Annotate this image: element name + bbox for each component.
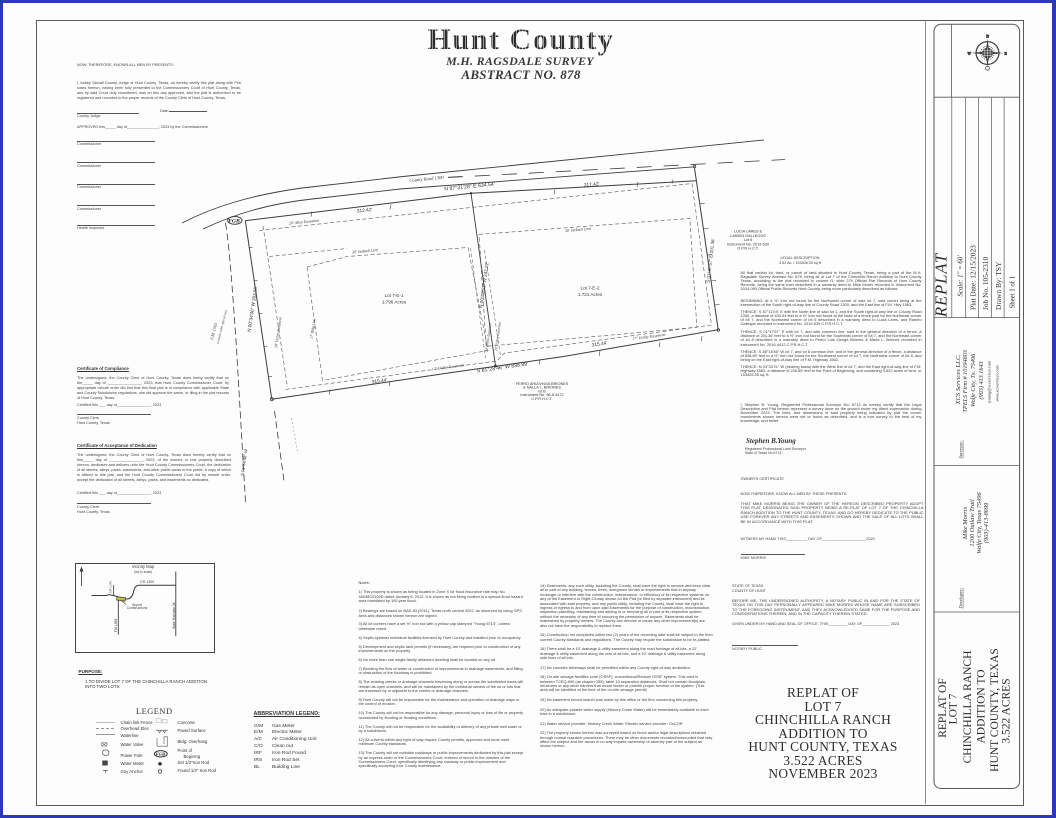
- svg-text:CR 1378: CR 1378: [109, 581, 113, 593]
- svg-text:ADDITION TO: ADDITION TO: [976, 670, 988, 744]
- svg-text:Job No. 105-2310: Job No. 105-2310: [981, 257, 990, 310]
- svg-text:20' Utility Easement: 20' Utility Easement: [494, 321, 502, 352]
- svg-text:S 01°38'48" W: S 01°38'48" W: [240, 449, 249, 476]
- svg-text:Scale: 1" = 60': Scale: 1" = 60': [957, 255, 964, 297]
- svg-text:Lot 7-E-2: Lot 7-E-2: [581, 286, 600, 291]
- svg-text:tyoung@xcsservices.com: tyoung@xcsservices.com: [987, 361, 992, 403]
- svg-text:1200 Outlaw Trail: 1200 Outlaw Trail: [969, 499, 976, 546]
- svg-text:315.44': 315.44': [591, 340, 607, 348]
- svg-text:312.42': 312.42': [357, 207, 373, 214]
- svg-text:319.44': 319.44': [371, 377, 387, 385]
- svg-text:State Highway 34: State Highway 34: [172, 602, 176, 629]
- svg-text:W: W: [968, 52, 972, 56]
- svg-text:20' Utility Easement: 20' Utility Easement: [274, 316, 283, 348]
- svg-text:O.P.R.H.C.T.: O.P.R.H.C.T.: [737, 247, 758, 251]
- svg-text:Wolfe City, Tx. 75496: Wolfe City, Tx. 75496: [970, 353, 977, 407]
- svg-text:FGB: FGB: [228, 219, 240, 225]
- svg-text:30' Setback Line: 30' Setback Line: [352, 247, 379, 255]
- svg-text:Surveyor:: Surveyor:: [958, 440, 963, 459]
- svg-text:N: N: [986, 34, 989, 38]
- svg-text:3.522 ACRES: 3.522 ACRES: [1001, 678, 1013, 743]
- svg-text:Mike Morris: Mike Morris: [962, 506, 969, 540]
- svg-text:1.721 Acres: 1.721 Acres: [578, 292, 603, 297]
- svg-text:(903) 413 1643: (903) 413 1643: [978, 361, 985, 399]
- svg-text:S 81°28'46" W 838.89': S 81°28'46" W 838.89': [476, 361, 528, 374]
- svg-text:20' Alley Easement: 20' Alley Easement: [289, 218, 321, 226]
- svg-text:N 00°34'06" W 203.56': N 00°34'06" W 203.56': [247, 286, 259, 332]
- svg-text:Developer:: Developer:: [958, 587, 963, 609]
- svg-text:N 87°31'28" E 634.54': N 87°31'28" E 634.54': [444, 182, 495, 193]
- svg-text:317.42': 317.42': [584, 181, 600, 188]
- svg-text:Plat Date: 12/15/2023: Plat Date: 12/15/2023: [968, 245, 977, 310]
- svg-text:17' Utility Easement: 17' Utility Easement: [431, 362, 465, 371]
- svg-text:Wolfe City, Texas 75496: Wolfe City, Texas 75496: [976, 492, 983, 554]
- svg-text:LOT 7: LOT 7: [947, 693, 959, 724]
- svg-text:(903)-413-8699: (903)-413-8699: [983, 502, 990, 543]
- svg-text:www.xcsservices.com: www.xcsservices.com: [995, 366, 1000, 402]
- svg-text:Lot 7-E-1: Lot 7-E-1: [385, 293, 404, 298]
- svg-text:TPELS Firm # 10194803: TPELS Firm # 10194803: [962, 350, 969, 412]
- svg-text:C.P.R.H.C.T.: C.P.R.H.C.T.: [531, 397, 552, 401]
- svg-text:E: E: [1005, 52, 1007, 56]
- svg-text:County Road 1300: County Road 1300: [409, 175, 444, 183]
- svg-text:N 00°08'53" W 242.22': N 00°08'53" W 242.22': [479, 262, 490, 308]
- svg-text:FGB: FGB: [156, 752, 165, 757]
- svg-text:S 01°47'57" E 201.36': S 01°47'57" E 201.36': [706, 238, 716, 283]
- svg-text:FM 1563: FM 1563: [114, 619, 118, 632]
- svg-text:XCS Services LLC.: XCS Services LLC.: [955, 354, 962, 406]
- svg-text:30' Setback Line: 30' Setback Line: [565, 226, 592, 233]
- svg-text:REPLAT: REPLAT: [932, 252, 951, 318]
- svg-text:Sheet 1 of 1: Sheet 1 of 1: [1010, 276, 1017, 309]
- svg-text:(variable width right of way): (variable width right of way): [216, 310, 228, 345]
- svg-text:CHINCHILLA RANCH: CHINCHILLA RANCH: [962, 651, 974, 764]
- svg-text:1.796 Acres: 1.796 Acres: [382, 300, 407, 305]
- svg-text:HUNT COUNTY, TEXAS: HUNT COUNTY, TEXAS: [989, 648, 1001, 772]
- svg-text:Drawn By: TSY: Drawn By: TSY: [994, 261, 1003, 310]
